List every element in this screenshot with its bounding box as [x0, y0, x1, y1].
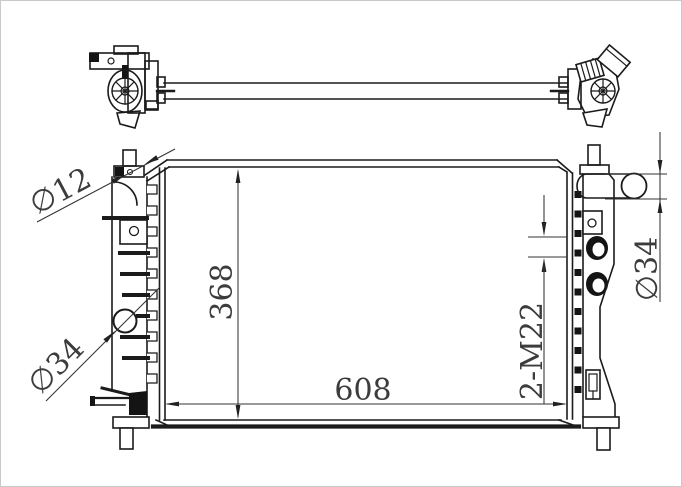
top-view [89, 45, 630, 128]
right-mounting-peg [597, 428, 610, 450]
left-tank-ribs [120, 253, 148, 358]
radiator-drawing-page: ∅12 ∅34 368 608 2-M22 ∅34 [0, 0, 682, 487]
right-tank-foot [583, 370, 619, 450]
label-core-height: 368 [205, 263, 240, 320]
label-pin-diameter: ∅12 [24, 161, 97, 222]
left-port [114, 310, 137, 333]
left-tank-bracket [104, 218, 147, 244]
drain-pin [123, 150, 136, 166]
thread-port-upper [586, 236, 608, 260]
right-tank-bracket [583, 211, 602, 234]
right-tank-tabs [575, 191, 582, 393]
filler-neck-icon [576, 45, 630, 82]
fan-mount-right-icon [591, 79, 615, 103]
left-tank-foot [90, 388, 149, 449]
top-view-right-bracket [559, 45, 630, 127]
fan-mount-left-icon [112, 78, 138, 104]
radiator-drawing: ∅12 ∅34 368 608 2-M22 ∅34 [1, 1, 682, 487]
label-inlet-diameter: ∅34 [630, 237, 665, 301]
left-tank-notches [147, 185, 157, 383]
label-left-port-diameter: ∅34 [21, 331, 91, 401]
left-mounting-peg [120, 428, 133, 449]
top-view-core-strip [157, 83, 568, 99]
right-top-peg [588, 145, 600, 165]
top-view-left-bracket [89, 46, 165, 128]
label-thread-ports: 2-M22 [515, 302, 550, 400]
label-core-width: 608 [334, 373, 391, 408]
dimension-labels: ∅12 ∅34 368 608 2-M22 ∅34 [21, 161, 665, 408]
